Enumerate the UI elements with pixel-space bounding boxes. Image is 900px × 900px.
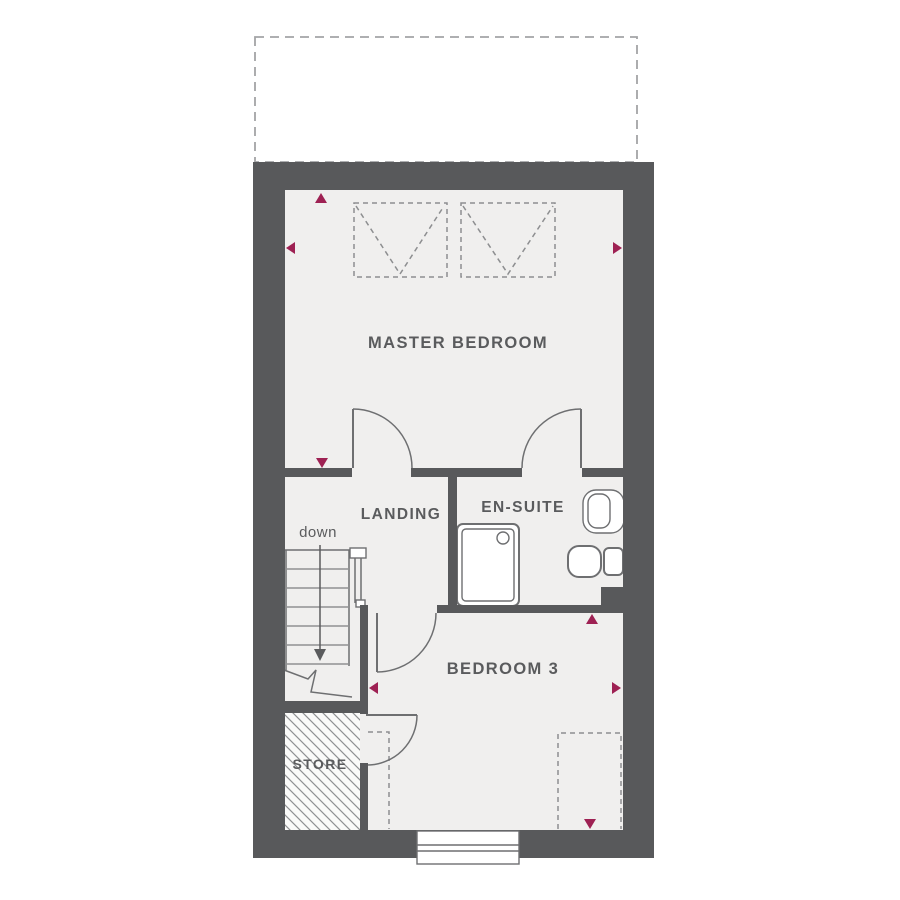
room-label-landing: LANDING	[361, 506, 441, 523]
floor-plan-page: MASTER BEDROOM LANDING EN-SUITE BEDROOM …	[0, 0, 900, 900]
roof-space-dashed-outline	[255, 37, 637, 162]
floor-plan: MASTER BEDROOM LANDING EN-SUITE BEDROOM …	[0, 0, 900, 900]
window-bedroom-3	[417, 831, 519, 864]
wall-ensuite-bedroom3	[437, 605, 623, 613]
shower-tray	[457, 524, 519, 606]
wall-notch	[601, 587, 623, 605]
wall-store-bedroom3	[360, 763, 368, 830]
basin	[583, 490, 624, 533]
room-label-store: STORE	[293, 756, 348, 772]
exterior-wall-left	[253, 162, 285, 858]
wall-master-landing	[285, 468, 352, 477]
stairs-direction-label: down	[299, 524, 337, 541]
exterior-wall-top	[253, 162, 654, 190]
wall-master-landing	[411, 468, 522, 477]
exterior-wall-right	[623, 162, 654, 858]
wall-master-ensuite	[582, 468, 623, 477]
room-label-en-suite: EN-SUITE	[481, 499, 565, 516]
toilet	[568, 546, 623, 577]
wall-landing-ensuite	[448, 468, 457, 613]
wall-landing-bedroom3	[360, 605, 368, 714]
room-label-bedroom-3: BEDROOM 3	[447, 660, 560, 678]
wall-store-top	[285, 701, 368, 713]
room-label-master-bedroom: MASTER BEDROOM	[368, 334, 548, 352]
